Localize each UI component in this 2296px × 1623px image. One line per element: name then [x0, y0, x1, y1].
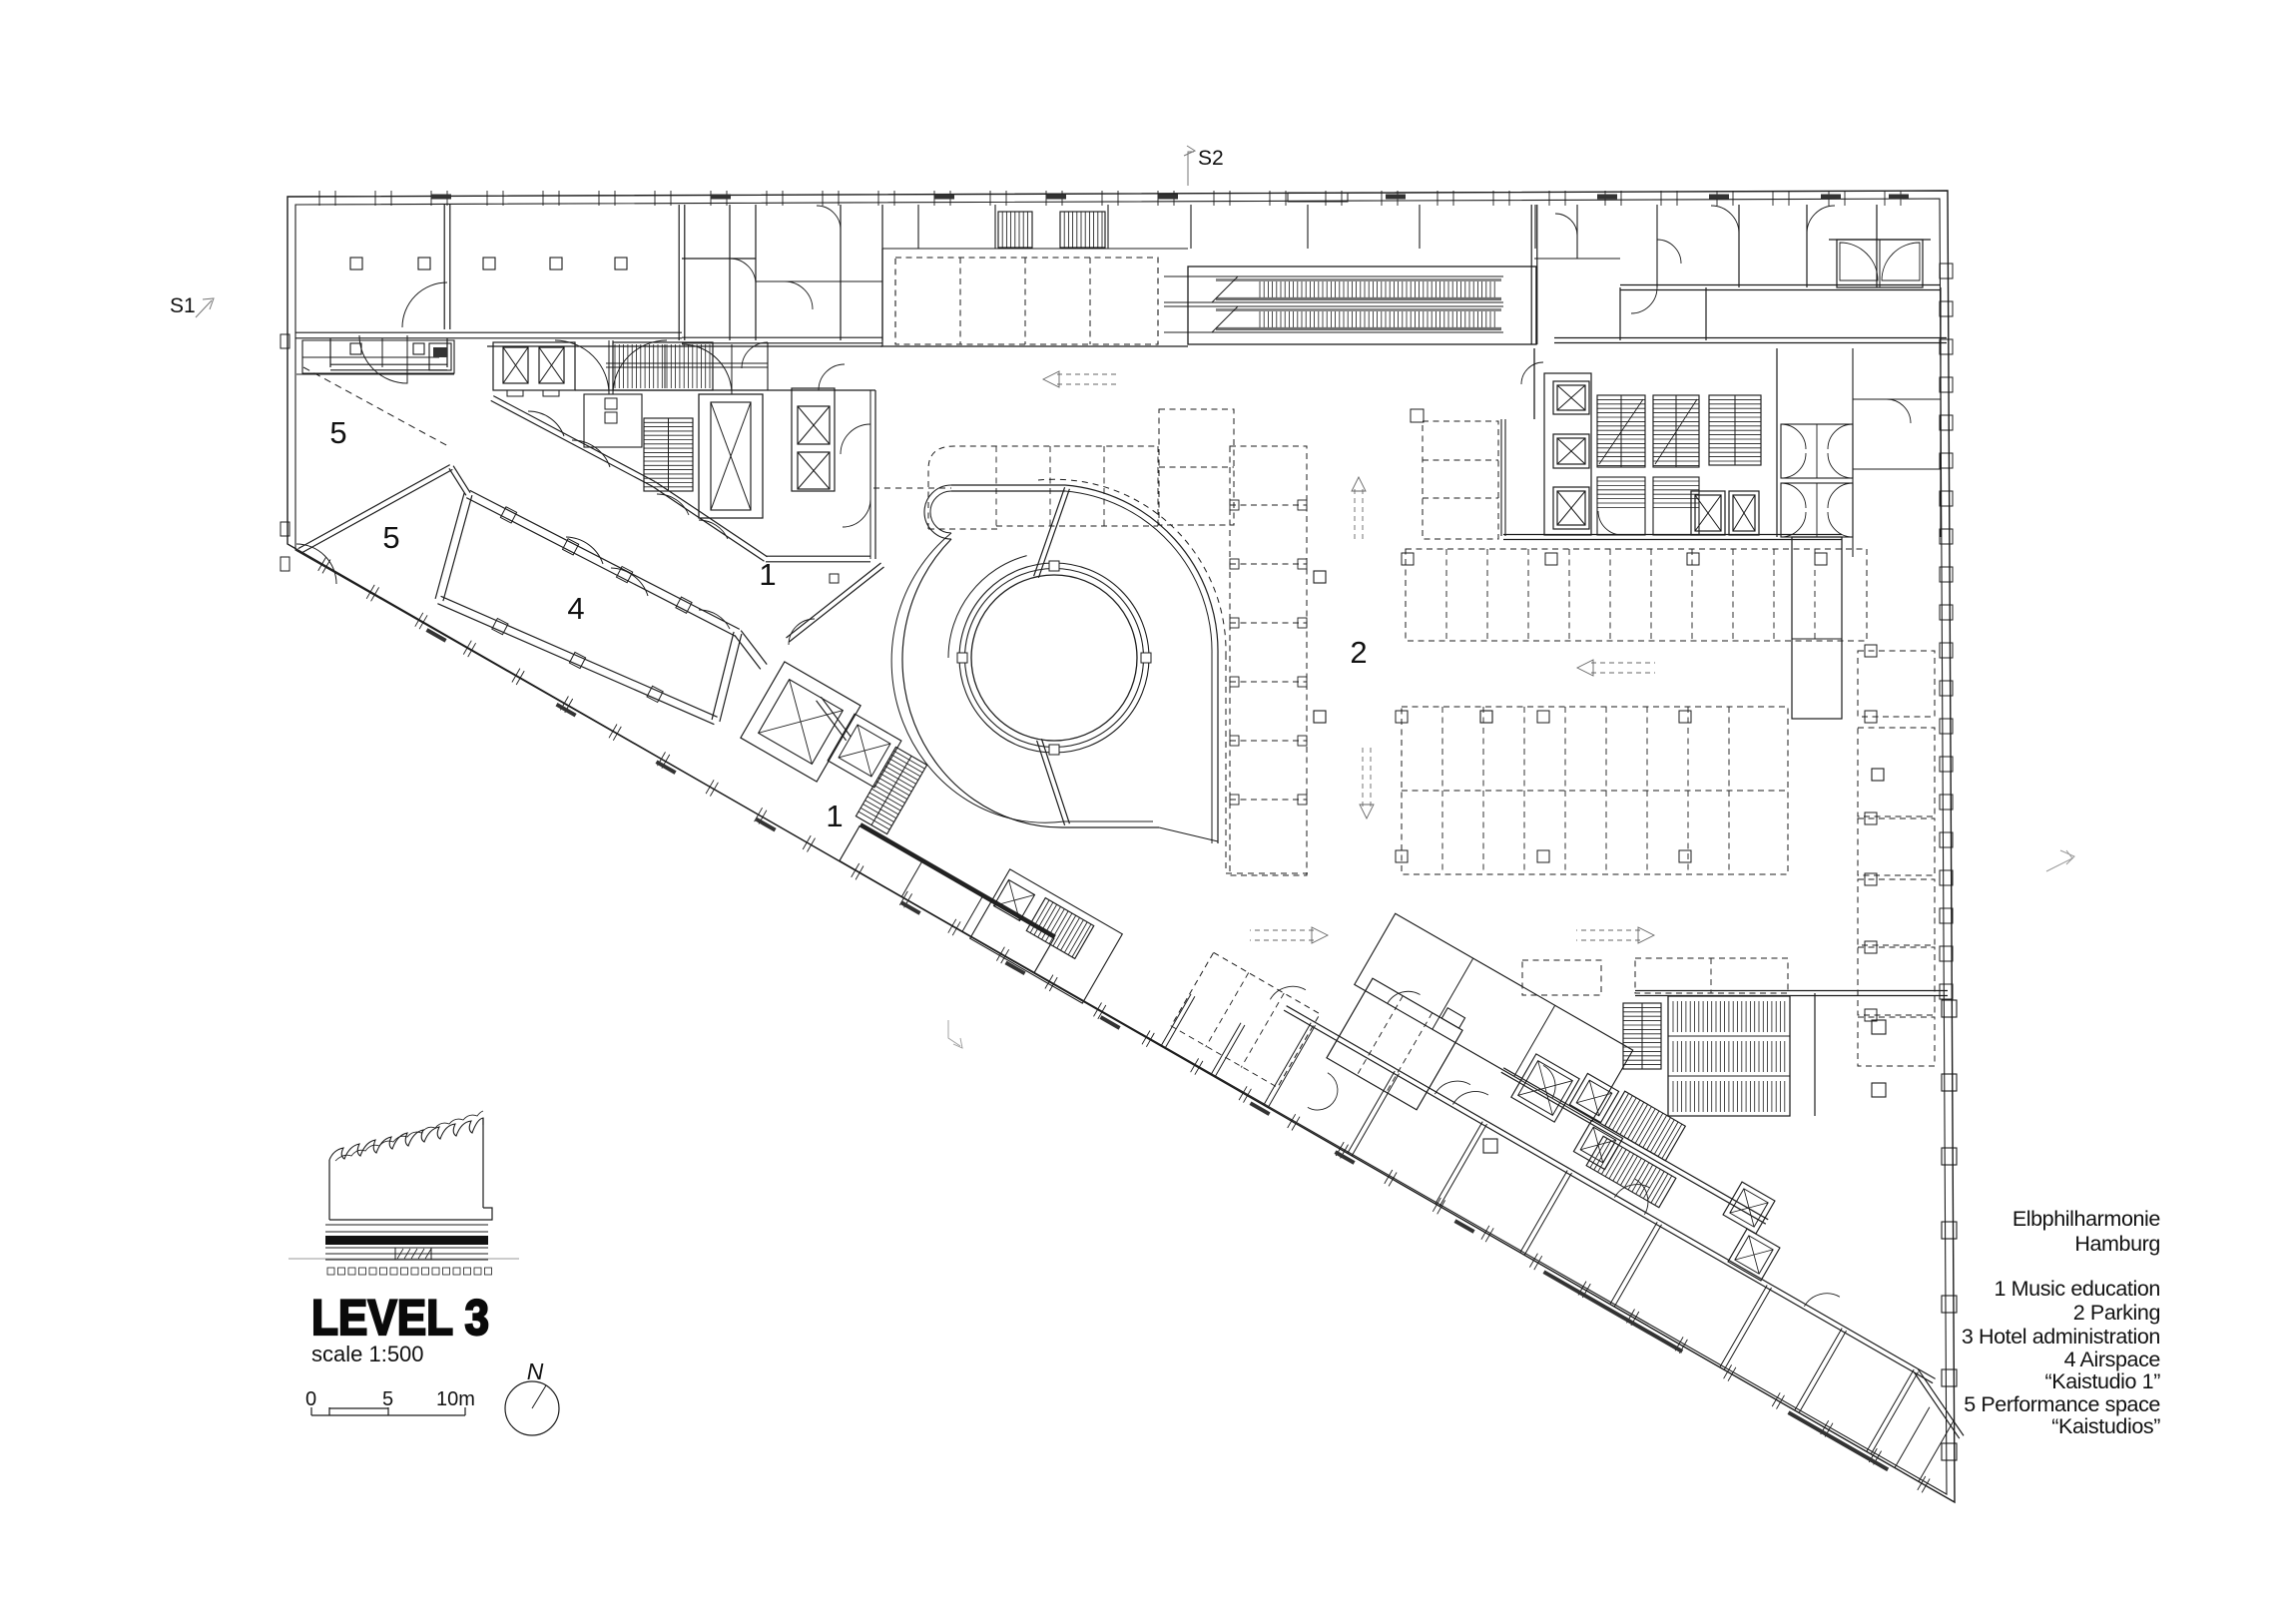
svg-text:5 Performance space: 5 Performance space	[1964, 1392, 2160, 1416]
svg-text:S2: S2	[1198, 147, 1224, 170]
svg-text:Elbphilharmonie: Elbphilharmonie	[2012, 1207, 2160, 1231]
svg-text:10m: 10m	[436, 1388, 475, 1410]
svg-text:1: 1	[826, 799, 843, 833]
svg-text:2 Parking: 2 Parking	[2073, 1301, 2160, 1325]
svg-text:0: 0	[305, 1388, 316, 1410]
svg-text:2: 2	[1350, 635, 1367, 670]
svg-text:“Kaistudio 1”: “Kaistudio 1”	[2045, 1369, 2161, 1393]
svg-text:scale 1:500: scale 1:500	[311, 1342, 424, 1366]
svg-text:N: N	[527, 1358, 544, 1384]
svg-text:5: 5	[382, 520, 399, 555]
svg-text:4: 4	[567, 591, 584, 626]
svg-text:4 Airspace: 4 Airspace	[2064, 1348, 2160, 1371]
svg-text:1 Music education: 1 Music education	[1995, 1277, 2161, 1301]
svg-text:5: 5	[329, 415, 346, 450]
svg-text:Hamburg: Hamburg	[2074, 1232, 2160, 1256]
svg-text:1: 1	[759, 557, 776, 592]
svg-text:“Kaistudios”: “Kaistudios”	[2051, 1414, 2160, 1438]
svg-text:LEVEL 3: LEVEL 3	[311, 1290, 489, 1346]
svg-text:S1: S1	[170, 294, 196, 317]
svg-text:5: 5	[382, 1388, 393, 1410]
svg-text:3 Hotel administration: 3 Hotel administration	[1962, 1325, 2160, 1349]
